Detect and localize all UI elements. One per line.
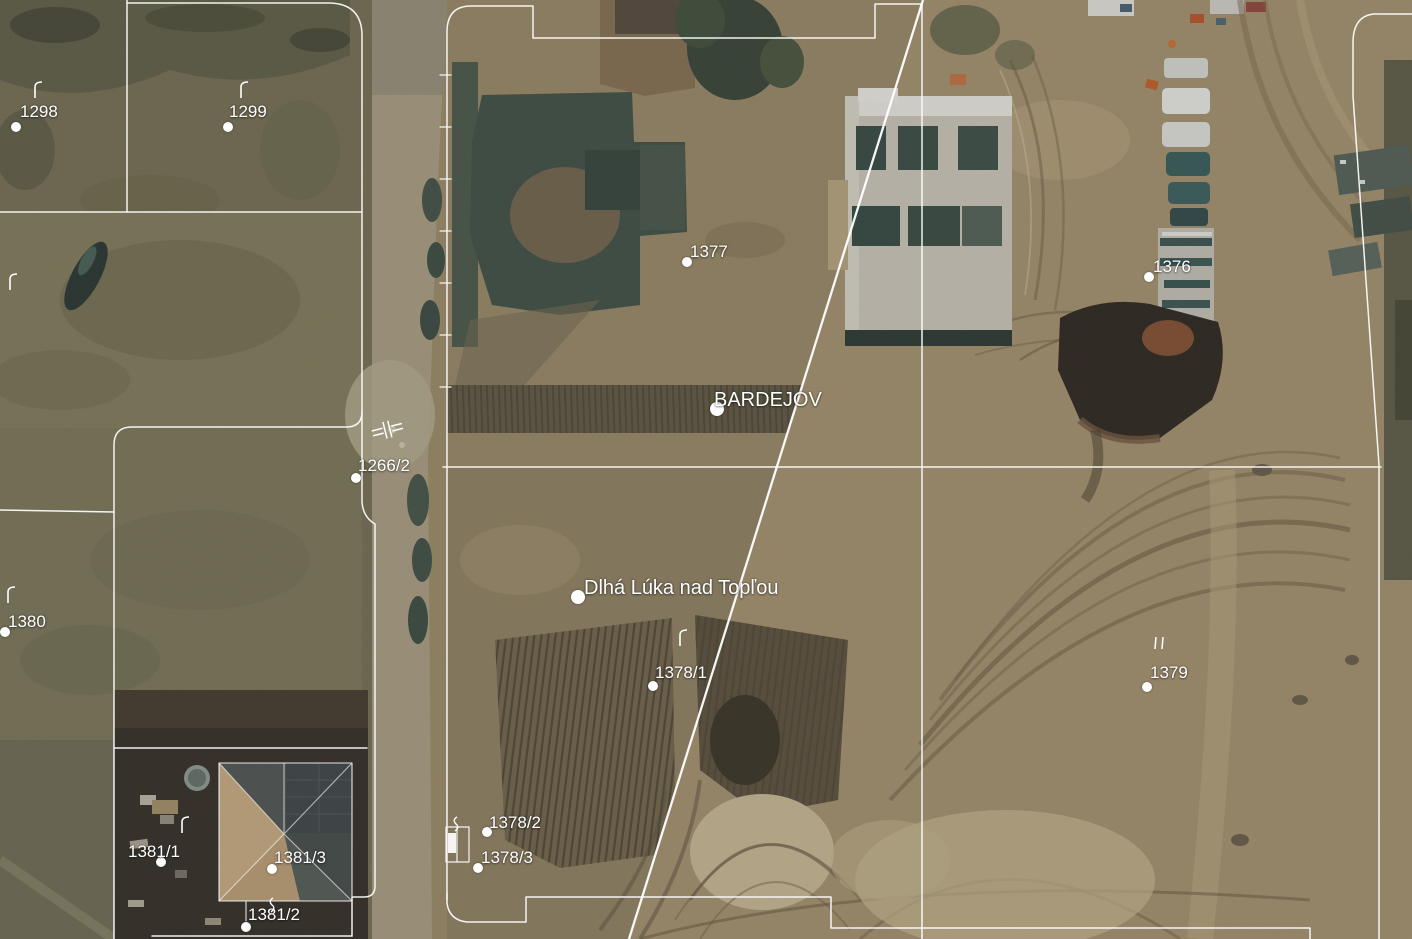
labels-layer: 12981299137713761266/213801378/113791378…: [0, 0, 1412, 939]
municipality-label[interactable]: BARDEJOV: [714, 390, 822, 410]
parcel-label[interactable]: 1299: [229, 103, 267, 120]
parcel-label[interactable]: 1381/1: [128, 843, 180, 860]
parcel-label[interactable]: 1378/1: [655, 664, 707, 681]
parcel-label[interactable]: 1298: [20, 103, 58, 120]
parcel-label[interactable]: 1381/3: [274, 849, 326, 866]
municipality-point[interactable]: [571, 590, 585, 604]
parcel-label[interactable]: 1378/2: [489, 814, 541, 831]
parcel-point[interactable]: [648, 681, 658, 691]
parcel-label[interactable]: 1380: [8, 613, 46, 630]
parcel-label[interactable]: 1378/3: [481, 849, 533, 866]
parcel-point[interactable]: [1142, 682, 1152, 692]
map-canvas[interactable]: 12981299137713761266/213801378/113791378…: [0, 0, 1412, 939]
municipality-label[interactable]: Dlhá Lúka nad Topľou: [584, 578, 779, 598]
parcel-label[interactable]: 1377: [690, 243, 728, 260]
parcel-label[interactable]: 1266/2: [358, 457, 410, 474]
parcel-label[interactable]: 1379: [1150, 664, 1188, 681]
parcel-point[interactable]: [223, 122, 233, 132]
parcel-label[interactable]: 1376: [1153, 258, 1191, 275]
parcel-point[interactable]: [11, 122, 21, 132]
